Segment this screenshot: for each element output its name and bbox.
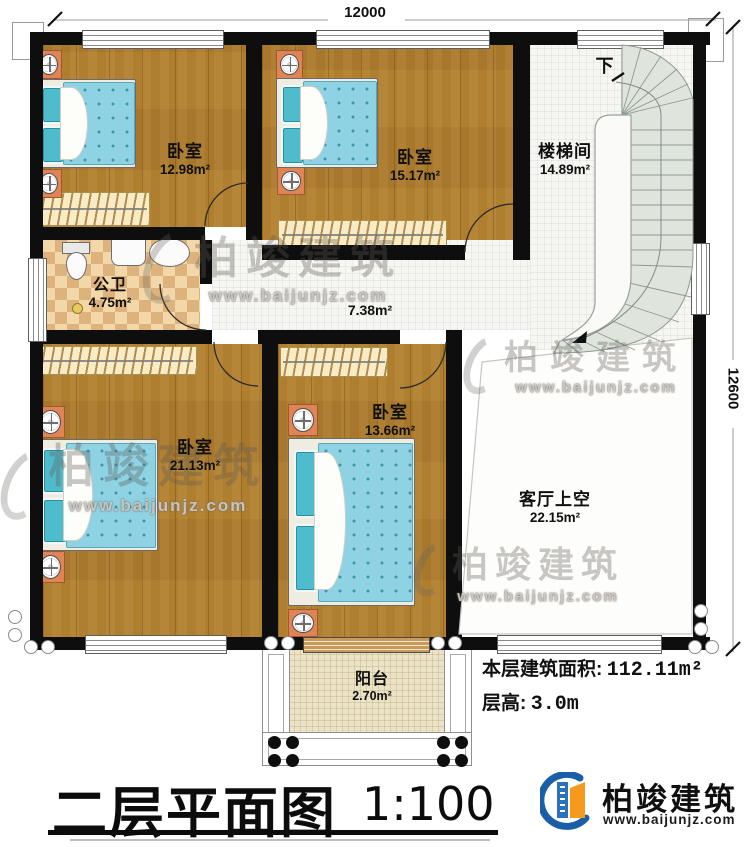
- nightstand: [288, 404, 318, 436]
- pillar-circle: [694, 604, 708, 618]
- window: [316, 30, 490, 49]
- pillar-circle: [694, 622, 708, 636]
- room-label-stairwell: 楼梯间 14.89m²: [510, 142, 620, 179]
- room-label-bathroom: 公卫 4.75m²: [70, 276, 150, 311]
- pillar-circle: [24, 640, 38, 654]
- balcony-sliding-door: [303, 637, 430, 653]
- room-area: 2.70m²: [330, 689, 414, 704]
- window: [691, 243, 710, 315]
- room-name: 卧室: [335, 403, 445, 423]
- window: [497, 635, 662, 654]
- room-area: 4.75m²: [70, 295, 150, 311]
- wall-interior: [446, 330, 462, 650]
- bed: [288, 438, 415, 606]
- lamp-icon: [40, 555, 61, 579]
- page-title: 二层平面图: [52, 768, 337, 847]
- room-label-bedroom-bottom-left: 卧室 21.13m²: [140, 438, 250, 475]
- pillar-circle: [264, 636, 278, 650]
- balcony-column-dot: [437, 736, 450, 749]
- drawing-scale: 1:100: [362, 777, 495, 831]
- wall-interior: [262, 330, 400, 344]
- wardrobe: [280, 347, 388, 377]
- nightstand: [277, 167, 305, 195]
- nightstand: [288, 609, 318, 637]
- balcony-column-dot: [455, 754, 468, 767]
- logo-building-orange: [570, 782, 585, 818]
- room-label-balcony: 阳台 2.70m²: [330, 670, 414, 704]
- wall-interior: [30, 330, 212, 344]
- info-label: 层高:: [482, 693, 526, 714]
- floor-plan-canvas: 柏竣建筑 www.baijunjz.com 柏竣建筑 www.baijunjz.…: [0, 0, 750, 847]
- balcony-column-dot: [437, 754, 450, 767]
- room-area: 7.38m²: [330, 302, 410, 319]
- wall-interior: [30, 227, 205, 240]
- info-floor-area: 本层建筑面积: 112.11m²: [482, 654, 703, 682]
- balcony-column-dot: [286, 736, 299, 749]
- watermark-name: 柏竣建筑: [452, 536, 624, 588]
- living-void-outline: [459, 338, 692, 634]
- room-name: 卧室: [140, 438, 250, 458]
- balcony-column-dot: [268, 754, 281, 767]
- window: [82, 30, 224, 49]
- pillar-circle: [448, 636, 462, 650]
- dimension-right: 12600: [725, 359, 742, 419]
- room-area: 21.13m²: [140, 458, 250, 474]
- lamp-icon: [292, 613, 314, 633]
- pillar-circle: [41, 640, 55, 654]
- room-area: 22.15m²: [500, 510, 610, 526]
- wall-exterior-right: [693, 32, 706, 650]
- window: [28, 258, 47, 342]
- wall-interior: [262, 330, 278, 650]
- room-area: 12.98m²: [130, 162, 240, 178]
- balcony-column-dot: [268, 736, 281, 749]
- room-label-living-void: 客厅上空 22.15m²: [500, 490, 610, 527]
- lamp-icon: [280, 54, 299, 75]
- room-area: 13.66m²: [335, 423, 445, 439]
- pillar-circle: [8, 628, 22, 642]
- lamp-icon: [292, 408, 314, 432]
- lamp-icon: [281, 171, 301, 191]
- dimension-top: 12000: [330, 4, 400, 21]
- room-label-bedroom-top-middle: 卧室 15.17m²: [360, 148, 470, 185]
- lamp-icon: [40, 410, 61, 434]
- room-label-corridor: 7.38m²: [330, 302, 410, 319]
- room-name: 楼梯间: [510, 142, 620, 162]
- nightstand: [276, 50, 303, 79]
- room-area: 15.17m²: [360, 168, 470, 184]
- balcony-column-dot: [455, 736, 468, 749]
- brand-website: www.baijunjz.com: [603, 812, 736, 827]
- room-label-bedroom-top-left: 卧室 12.98m²: [130, 142, 240, 179]
- wall-interior: [200, 240, 212, 284]
- watermark-logo-icon: [455, 329, 516, 401]
- info-value: 3.0m: [531, 693, 579, 716]
- balcony-column-dot: [286, 754, 299, 767]
- room-name: 客厅上空: [500, 490, 610, 510]
- room-name: 公卫: [70, 276, 150, 295]
- bed: [36, 79, 136, 168]
- pillar-circle: [8, 610, 22, 624]
- room-name: 卧室: [360, 148, 470, 168]
- window: [577, 30, 664, 49]
- watermark-url: www.baijunjz.com: [457, 588, 618, 605]
- brand-logo-icon: [540, 772, 594, 830]
- wall-interior: [262, 245, 465, 260]
- info-value: 112.11m²: [607, 659, 703, 682]
- room-label-bedroom-bottom-middle: 卧室 13.66m²: [335, 403, 445, 440]
- title-underline-light: [70, 839, 490, 841]
- info-floor-height: 层高: 3.0m: [482, 688, 579, 716]
- room-name: 阳台: [330, 670, 414, 689]
- pillar-circle: [281, 636, 295, 650]
- window: [85, 635, 227, 654]
- pillar-circle: [705, 640, 719, 654]
- stair-down-label: 下: [588, 56, 622, 78]
- wardrobe: [36, 346, 197, 375]
- pillar-circle: [688, 640, 702, 654]
- title-underline: [48, 830, 498, 835]
- floor-stairwell: [530, 45, 693, 350]
- pillar-circle: [431, 636, 445, 650]
- room-area: 14.89m²: [510, 162, 620, 178]
- info-label: 本层建筑面积:: [482, 659, 602, 680]
- sink: [149, 238, 190, 267]
- wall-exterior-bottom: [660, 637, 710, 650]
- wall-interior: [246, 45, 262, 240]
- watermark-url: www.baijunjz.com: [515, 379, 676, 396]
- room-name: 卧室: [130, 142, 240, 162]
